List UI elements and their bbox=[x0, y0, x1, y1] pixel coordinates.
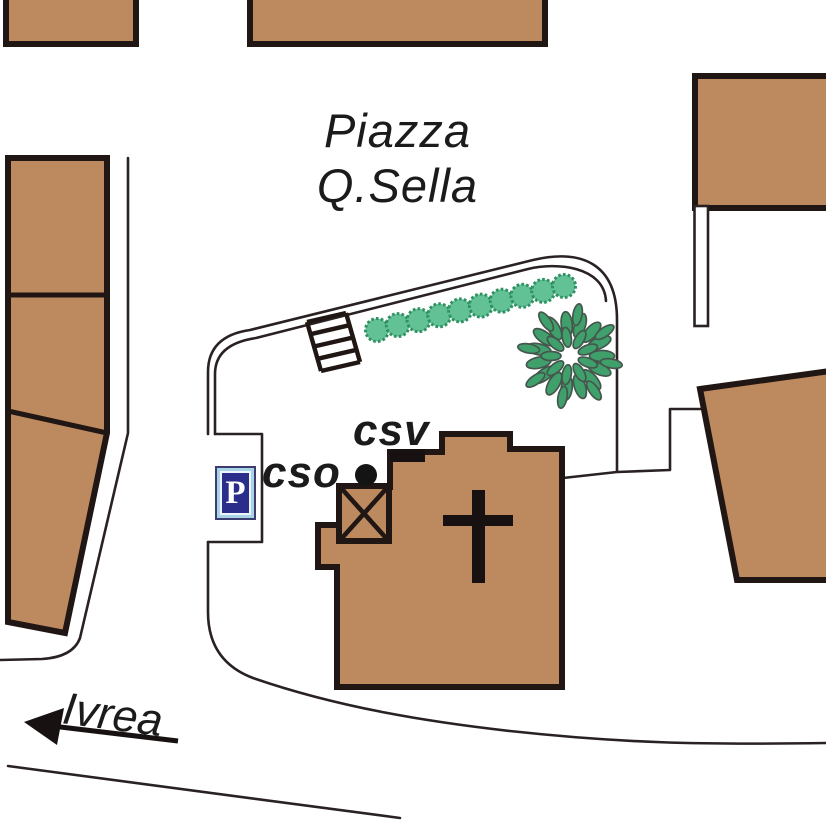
building-top-right bbox=[695, 76, 826, 208]
shrub-icon bbox=[553, 275, 576, 298]
building-top-middle bbox=[250, 0, 545, 44]
wall-strip bbox=[695, 206, 709, 326]
shrub-icon bbox=[532, 279, 555, 302]
label-cso: cso bbox=[262, 448, 341, 498]
church-body bbox=[318, 434, 562, 687]
shrub-icon bbox=[407, 309, 430, 332]
shrub-icon bbox=[490, 289, 513, 312]
shrub-icon bbox=[386, 314, 409, 337]
stairs-icon bbox=[307, 313, 360, 371]
tree-leaf-icon bbox=[541, 351, 561, 360]
building-left-column bbox=[8, 158, 107, 633]
church bbox=[318, 434, 562, 687]
parking-icon: P bbox=[215, 466, 256, 520]
plaza-title: Piazza Q.Sella bbox=[225, 104, 570, 213]
shrub-icon bbox=[469, 294, 492, 317]
parking-letter: P bbox=[220, 471, 251, 515]
shrub-icon bbox=[366, 319, 389, 342]
building-right-middle bbox=[700, 371, 826, 580]
label-csv: csv bbox=[353, 406, 429, 456]
plaza-title-line2: Q.Sella bbox=[225, 159, 570, 214]
city-map: Piazza Q.Sella csv cso Ivrea P bbox=[0, 0, 826, 826]
shrub-icon bbox=[428, 304, 451, 327]
shrub-icon bbox=[511, 284, 534, 307]
shrub-icon bbox=[449, 299, 472, 322]
greenery-layer bbox=[366, 275, 623, 409]
building-top-left bbox=[6, 0, 136, 44]
bottom-left-road-line bbox=[8, 766, 400, 818]
parcel-connector-line bbox=[563, 409, 700, 478]
poi-dot-icon bbox=[355, 464, 377, 486]
plaza-title-line1: Piazza bbox=[225, 104, 570, 159]
